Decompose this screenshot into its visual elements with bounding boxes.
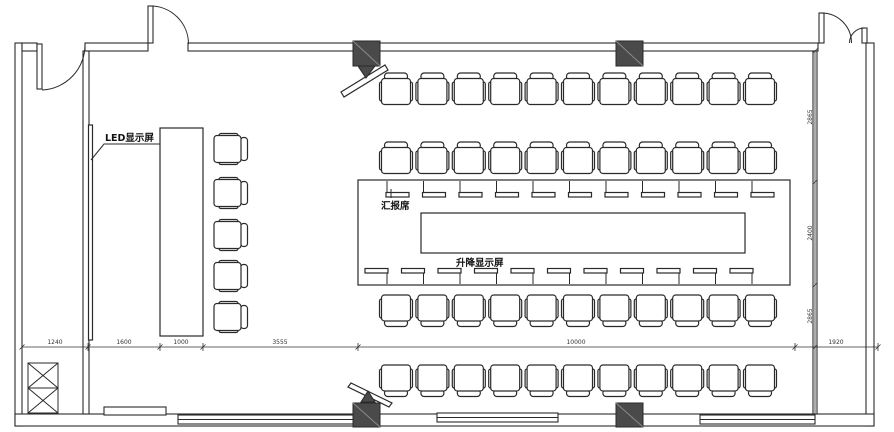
audience-chair bbox=[489, 365, 522, 397]
audience-chair bbox=[671, 295, 704, 327]
dim-value: 3555 bbox=[272, 339, 287, 346]
side-chair bbox=[214, 134, 248, 165]
bottom-windows bbox=[104, 407, 815, 424]
head-table bbox=[160, 128, 203, 336]
audience-chair bbox=[707, 73, 740, 105]
audience-chair bbox=[416, 73, 449, 105]
window bbox=[104, 407, 166, 415]
column bbox=[353, 403, 380, 427]
door-swing-arc bbox=[42, 45, 85, 90]
wall-right bbox=[866, 43, 874, 426]
floor-plan-page: LED显示屏 汇报席 升降显示屏 12401600100035551000019… bbox=[0, 0, 894, 432]
audience-chair bbox=[707, 295, 740, 327]
audience-chair bbox=[744, 295, 777, 327]
column bbox=[616, 403, 643, 427]
audience-chair bbox=[416, 295, 449, 327]
floor-plan-canvas: LED显示屏 汇报席 升降显示屏 12401600100035551000019… bbox=[0, 0, 894, 432]
audience-chair bbox=[489, 142, 522, 174]
dim-value: 1920 bbox=[828, 339, 843, 346]
door-leaf bbox=[148, 6, 153, 43]
audience-chair bbox=[452, 142, 485, 174]
double-door-leaf-large bbox=[819, 13, 824, 43]
wall-top-seg1 bbox=[22, 43, 37, 51]
audience-chair bbox=[744, 142, 777, 174]
wall-top-seg3 bbox=[188, 43, 818, 51]
audience-chair bbox=[634, 73, 667, 105]
column bbox=[616, 41, 643, 66]
audience-chair bbox=[452, 73, 485, 105]
door-leaf bbox=[37, 44, 42, 89]
audience-chair bbox=[452, 365, 485, 397]
audience-chair bbox=[562, 142, 595, 174]
audience-chair bbox=[380, 295, 413, 327]
audience-chair bbox=[634, 295, 667, 327]
audience-chair bbox=[489, 73, 522, 105]
dim-value: 2400 bbox=[807, 225, 814, 240]
led-display-strip bbox=[89, 125, 93, 340]
side-chair bbox=[214, 178, 248, 209]
audience-chair bbox=[671, 365, 704, 397]
double-door-leaf-small bbox=[862, 28, 867, 43]
audience-chair bbox=[452, 295, 485, 327]
audience-chair bbox=[744, 365, 777, 397]
audience-chair bbox=[671, 142, 704, 174]
door-swing-arc bbox=[151, 6, 189, 44]
lifting-display-label: 升降显示屏 bbox=[456, 257, 504, 269]
audience-chair bbox=[525, 365, 558, 397]
door-swing-arc bbox=[822, 13, 852, 43]
audience-chair bbox=[416, 142, 449, 174]
dim-value: 10000 bbox=[566, 339, 585, 346]
dim-value: 1600 bbox=[116, 339, 131, 346]
audience-chair bbox=[489, 295, 522, 327]
audience-chair bbox=[598, 142, 631, 174]
column bbox=[353, 41, 380, 66]
audience-chair bbox=[707, 365, 740, 397]
audience-chair bbox=[562, 73, 595, 105]
audience-chair bbox=[562, 365, 595, 397]
wall-left bbox=[15, 43, 22, 426]
audience-chair bbox=[416, 365, 449, 397]
audience-chair bbox=[598, 73, 631, 105]
dim-value: 2865 bbox=[807, 109, 814, 124]
audience-chair bbox=[707, 142, 740, 174]
audience-chair bbox=[598, 295, 631, 327]
side-chairs bbox=[214, 134, 248, 333]
audience-chair bbox=[380, 365, 413, 397]
audience-chair bbox=[380, 142, 413, 174]
shaft-boxes bbox=[28, 363, 58, 413]
wall-top-seg2 bbox=[85, 43, 148, 51]
audience-chair bbox=[634, 142, 667, 174]
side-chair bbox=[214, 220, 248, 251]
led-label-leader bbox=[91, 144, 160, 160]
dim-value: 2865 bbox=[807, 308, 814, 323]
audience-chair bbox=[525, 73, 558, 105]
dim-value: 1240 bbox=[47, 339, 62, 346]
dim-value: 1000 bbox=[173, 339, 188, 346]
reporter-seat-label: 汇报席 bbox=[381, 200, 410, 212]
audience-chair bbox=[598, 365, 631, 397]
audience-chair bbox=[744, 73, 777, 105]
audience-chair bbox=[525, 142, 558, 174]
audience-chair bbox=[562, 295, 595, 327]
audience-chair bbox=[525, 295, 558, 327]
audience-chair bbox=[671, 73, 704, 105]
lifting-display-box bbox=[421, 213, 745, 253]
audience-chair bbox=[380, 73, 413, 105]
audience-chair bbox=[634, 365, 667, 397]
led-display-label: LED显示屏 bbox=[105, 133, 154, 144]
side-chair bbox=[214, 261, 248, 292]
side-chair bbox=[214, 302, 248, 333]
